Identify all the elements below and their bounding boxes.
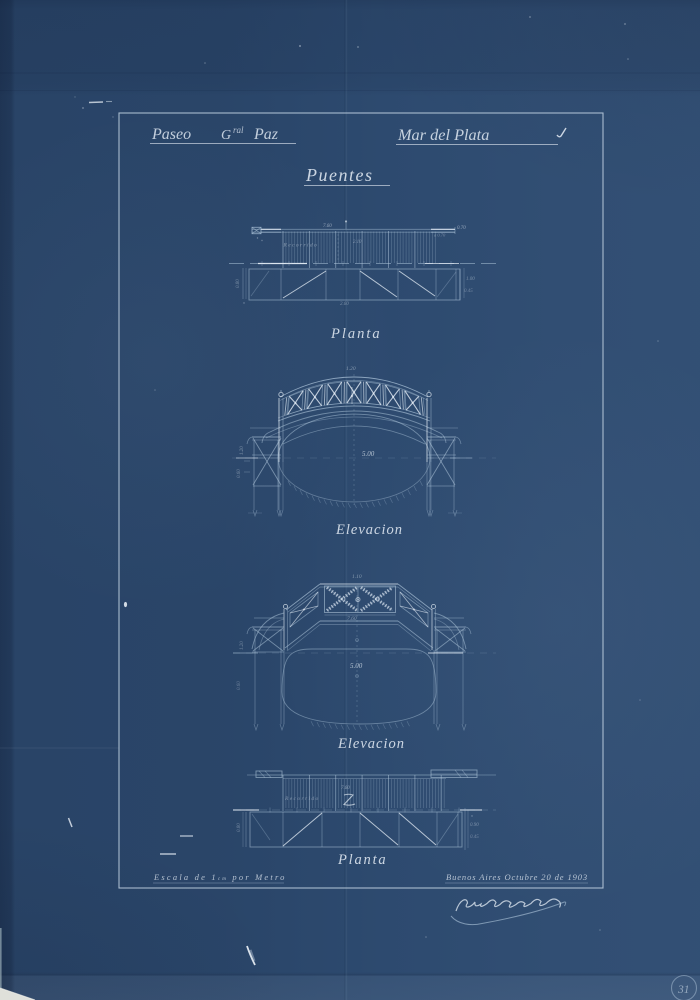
svg-text:0.60: 0.60 <box>237 681 242 690</box>
svg-text:Paz: Paz <box>253 126 279 143</box>
svg-text:Puentes: Puentes <box>305 165 373 185</box>
svg-text:a 0.70: a 0.70 <box>434 233 446 238</box>
svg-text:7.60: 7.60 <box>341 786 350 791</box>
svg-text:R e c o r r i d o: R e c o r r i d o <box>283 243 318 249</box>
svg-text:Planta: Planta <box>337 852 387 868</box>
svg-text:1.10: 1.10 <box>352 574 362 580</box>
svg-text:0.90: 0.90 <box>470 823 479 828</box>
svg-text:5.00: 5.00 <box>350 662 363 670</box>
svg-text:1.20: 1.20 <box>240 641 245 650</box>
svg-text:Mar del Plata: Mar del Plata <box>397 125 489 144</box>
svg-text:7.60: 7.60 <box>347 616 357 622</box>
svg-text:7.60: 7.60 <box>323 224 332 229</box>
svg-text:Elevacion: Elevacion <box>335 522 403 538</box>
svg-text:Paseo: Paseo <box>151 126 191 143</box>
svg-text:1.20: 1.20 <box>346 366 356 372</box>
svg-text:2.60: 2.60 <box>340 302 349 307</box>
svg-text:0.80: 0.80 <box>236 279 241 288</box>
svg-text:0.45: 0.45 <box>464 289 473 294</box>
svg-text:0.60: 0.60 <box>237 469 242 478</box>
svg-text:R e c o r r i d o: R e c o r r i d o <box>284 796 319 802</box>
svg-text:1.20: 1.20 <box>240 446 245 455</box>
svg-text:Planta: Planta <box>330 326 382 342</box>
svg-text:G: G <box>221 128 231 143</box>
svg-text:Escala de 1cm por Metro: Escala de 1cm por Metro <box>153 872 287 882</box>
svg-text:1.00: 1.00 <box>466 277 475 282</box>
svg-text:31: 31 <box>677 984 690 996</box>
svg-text:5.00: 5.00 <box>362 450 375 458</box>
svg-text:0.45: 0.45 <box>470 835 479 840</box>
svg-text:2.10: 2.10 <box>353 240 362 245</box>
svg-text:Elevacion: Elevacion <box>337 736 405 752</box>
svg-text:0.70: 0.70 <box>457 226 466 231</box>
svg-text:Buenos Aires Octubre 20 de 190: Buenos Aires Octubre 20 de 1903 <box>446 872 588 882</box>
svg-text:ral: ral <box>233 125 244 135</box>
svg-text:0.80: 0.80 <box>237 823 242 832</box>
